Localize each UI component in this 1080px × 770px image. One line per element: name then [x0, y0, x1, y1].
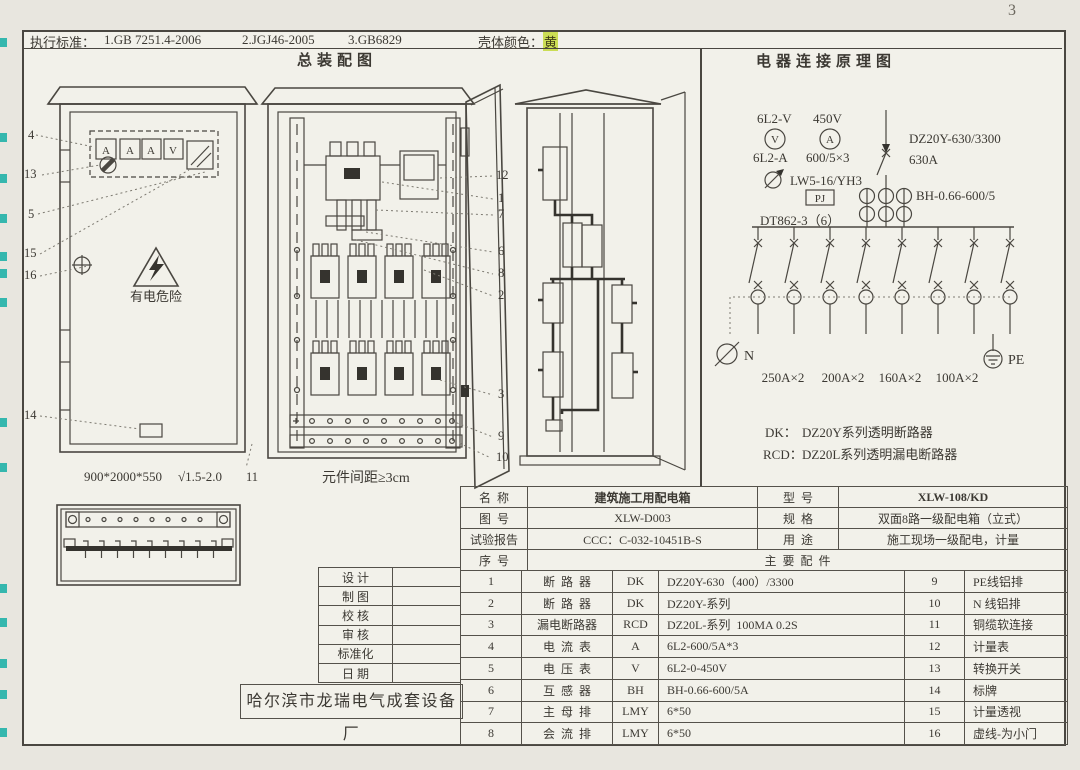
voltmeter-letter: V — [771, 134, 779, 146]
earth-label: PE — [1008, 353, 1024, 368]
main-breaker-current: 630A — [909, 152, 939, 167]
ammeter-letter: A — [826, 134, 834, 146]
ct-ratio: 600/5×3 — [806, 150, 849, 165]
callout-14: 14 — [24, 408, 37, 422]
neutral-label: N — [744, 349, 754, 364]
callout-16: 16 — [24, 268, 37, 282]
sign-design: 设 计 — [319, 568, 393, 587]
table-row: 4电 流 表A6L2-600/5A*312计量表 — [461, 636, 1068, 658]
scan-mark — [0, 38, 7, 47]
spacing-caption: 元件间距≥3cm — [322, 470, 410, 486]
neutral-symbol — [715, 342, 739, 366]
scan-mark — [0, 418, 7, 427]
door-lock — [72, 255, 92, 275]
callout-15: 15 — [24, 246, 37, 260]
cabinet-open-view: 12 1 7 6 8 2 3 9 10 元件间距≥3cm — [262, 85, 509, 488]
usage-label: 用 途 — [758, 529, 839, 550]
name-value: 建筑施工用配电箱 — [528, 487, 758, 508]
callout-10: 10 — [496, 450, 509, 464]
sign-review: 审 核 — [319, 625, 393, 644]
rating-200a: 200A×2 — [822, 370, 865, 385]
callout-8: 8 — [498, 266, 504, 280]
scan-mark — [0, 584, 7, 593]
scan-mark — [0, 659, 7, 668]
surface-finish-mark: √1.5-2.0 — [178, 469, 222, 484]
table-row: 2断 路 器DKDZ20Y-系列10N 线铝排 — [461, 592, 1068, 614]
legend-rcd-code: RCD： — [763, 447, 803, 462]
info-table: 名 称 建筑施工用配电箱 型 号 XLW-108/KD 图 号 XLW-D003… — [460, 486, 1068, 550]
scan-mark — [0, 728, 7, 737]
voltmeter-label: V — [169, 145, 177, 157]
scan-mark — [0, 269, 7, 278]
drawing-no-label: 图 号 — [461, 508, 528, 529]
sign-check: 校 核 — [319, 606, 393, 625]
changeover-switch-model: LW5-16/YH3 — [790, 173, 862, 188]
parts-header-row: 序 号 主 要 配 件 — [460, 549, 1068, 571]
scan-mark — [0, 214, 7, 223]
rating-160a: 160A×2 — [879, 370, 922, 385]
legend-dk-desc: DZ20Y系列透明断路器 — [802, 425, 933, 440]
scan-mark — [0, 252, 7, 261]
cabinet-side-view — [515, 90, 685, 470]
open-door — [461, 85, 509, 488]
name-label: 名 称 — [461, 487, 528, 508]
table-row: 7主 母 排LMY6*5015计量透视 — [461, 701, 1068, 723]
cabinet-front-view: A A A V 有电危险 4 13 5 15 16 — [24, 87, 258, 484]
earth-symbol — [984, 334, 1002, 368]
usage-value: 施工现场一级配电，计量 — [839, 529, 1068, 550]
cabinet-dimensions: 900*2000*550 — [84, 469, 162, 484]
callout-2: 2 — [498, 288, 504, 302]
wiring-band — [316, 300, 437, 338]
scan-mark — [0, 618, 7, 627]
callout-3: 3 — [498, 387, 504, 401]
sign-date: 日 期 — [319, 663, 393, 682]
scan-mark — [0, 690, 7, 699]
sign-draw: 制 图 — [319, 587, 393, 606]
spec-label: 规 格 — [758, 508, 839, 529]
warning-text: 有电危险 — [130, 289, 182, 304]
parts-header: 主 要 配 件 — [528, 550, 1068, 571]
ammeter-1-label: A — [102, 145, 110, 157]
seq-header: 序 号 — [461, 550, 528, 571]
scan-mark — [0, 133, 7, 142]
busbar-detail — [57, 505, 240, 585]
ct-model: BH-0.66-600/5 — [916, 188, 995, 203]
legend-rcd-desc: DZ20L系列透明漏电断路器 — [802, 447, 957, 462]
company-name: 哈尔滨市龙瑞电气成套设备厂 — [240, 684, 463, 719]
side-view-wiring — [550, 200, 625, 420]
parts-table: 1断 路 器DKDZ20Y-630（400）/33009PE线铝排 2断 路 器… — [460, 570, 1068, 745]
callout-11: 11 — [246, 470, 258, 484]
callout-7: 7 — [498, 207, 504, 221]
callout-1: 1 — [498, 191, 504, 205]
sign-standard: 标准化 — [319, 644, 393, 663]
callout-4: 4 — [28, 128, 35, 142]
table-row: 1断 路 器DKDZ20Y-630（400）/33009PE线铝排 — [461, 571, 1068, 593]
voltmeter-model: 6L2-V — [757, 111, 792, 126]
legend-dk-code: DK： — [765, 425, 797, 440]
scan-mark — [0, 174, 7, 183]
bottom-busbars — [290, 415, 462, 447]
schematic-drawing: 6L2-V 450V V A 6L2-A 600/5×3 LW5-16/YH3 … — [715, 110, 1024, 462]
table-row: 8会 流 排LMY6*5016虚线-为小门 — [461, 723, 1068, 745]
meter-tag: PJ — [815, 193, 826, 205]
drawing-no-value: XLW-D003 — [528, 508, 758, 529]
main-incoming — [877, 110, 890, 188]
callout-9: 9 — [498, 429, 504, 443]
test-report-value: CCC：C-032-10451B-S — [528, 529, 758, 550]
rating-100a: 100A×2 — [936, 370, 979, 385]
voltmeter-range: 450V — [813, 111, 843, 126]
energy-meter-model: DT862-3（6） — [760, 213, 840, 228]
current-transformers — [860, 188, 912, 227]
ammeter-2-label: A — [126, 145, 134, 157]
drawing-sheet: 3 执行标准： 1.GB 7251.4-2006 2.JGJ46-2005 3.… — [0, 0, 1080, 770]
ammeter-3-label: A — [147, 145, 155, 157]
spec-value: 双面8路一级配电箱（立式） — [839, 508, 1068, 529]
energy-meter-drawing — [400, 151, 438, 199]
callout-5: 5 — [28, 207, 34, 221]
signature-table: 设 计 制 图 校 核 审 核 标准化 日 期 — [318, 567, 461, 683]
scan-mark — [0, 298, 7, 307]
table-row: 6互 感 器BHBH-0.66-600/5A14标牌 — [461, 679, 1068, 701]
test-report-label: 试验报告 — [461, 529, 528, 550]
model-label: 型 号 — [758, 487, 839, 508]
ammeter-model: 6L2-A — [753, 150, 788, 165]
callout-13: 13 — [24, 167, 37, 181]
electric-danger-sign — [134, 248, 178, 286]
callout-6: 6 — [498, 244, 504, 258]
rating-250a: 250A×2 — [762, 370, 805, 385]
table-row: 3漏电断路器RCDDZ20L-系列 100MA 0.2S11铜缆软连接 — [461, 614, 1068, 636]
scan-mark — [0, 463, 7, 472]
main-breaker-model: DZ20Y-630/3300 — [909, 131, 1001, 146]
model-value: XLW-108/KD — [839, 487, 1068, 508]
nameplate — [140, 424, 162, 437]
table-row: 5电 压 表V6L2-0-450V13转换开关 — [461, 658, 1068, 680]
callout-12: 12 — [496, 168, 509, 182]
